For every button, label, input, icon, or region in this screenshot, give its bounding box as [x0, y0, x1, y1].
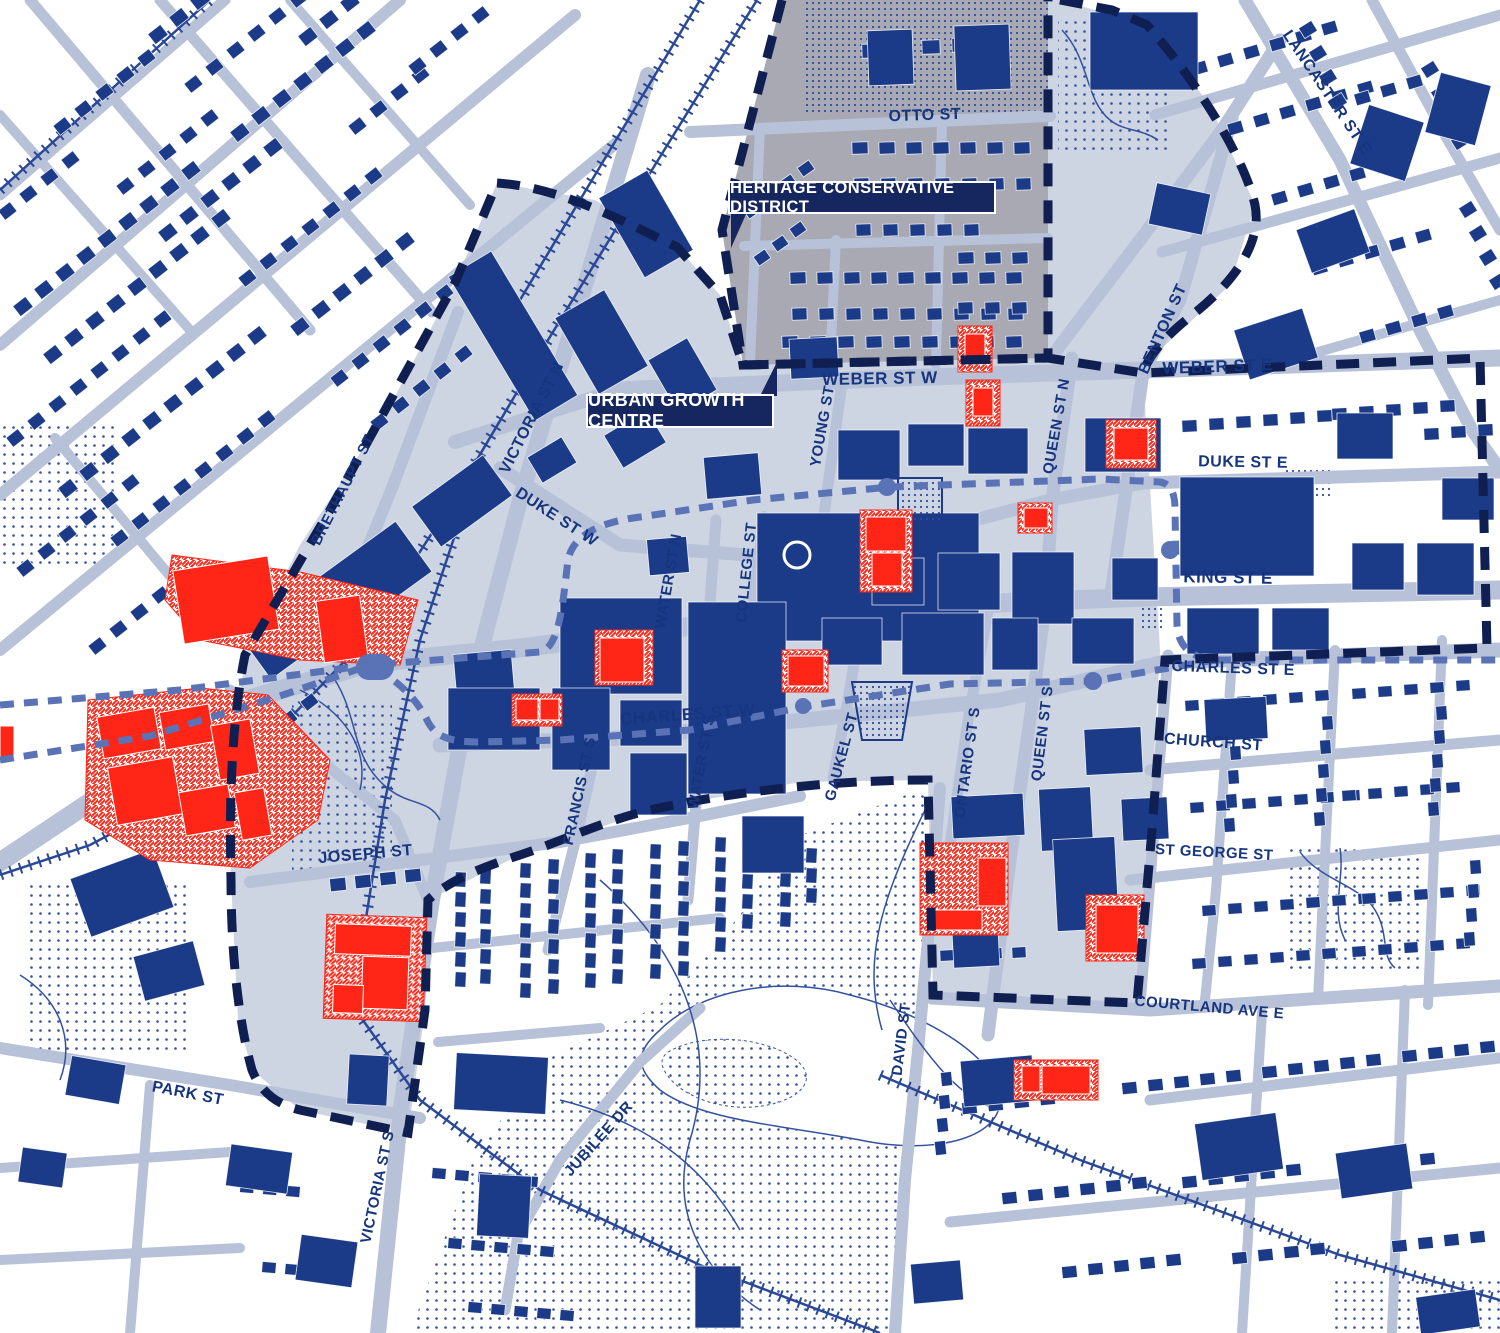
house-building [1456, 680, 1471, 692]
house-building [1413, 402, 1429, 415]
house-building [540, 1245, 555, 1257]
house-building [1388, 891, 1403, 903]
house-building [520, 863, 532, 879]
house-building [883, 224, 898, 237]
house-building [480, 909, 492, 925]
heritage-district-callout: HERITAGE CONSERVATIVE DISTRICT [728, 181, 996, 214]
house-building [922, 336, 938, 349]
house-building [1224, 818, 1236, 833]
house-building [448, 1237, 463, 1249]
house-building [934, 1140, 946, 1155]
house-building [879, 142, 895, 155]
house-building [494, 1241, 509, 1253]
urban-growth-centre-callout-label: URBAN GROWTH CENTRE [588, 390, 772, 432]
house-building [1339, 1056, 1355, 1070]
street-label: OTTO ST [888, 106, 961, 126]
urban-growth-centre-callout: URBAN GROWTH CENTRE [586, 394, 774, 428]
house-building [548, 899, 560, 915]
house-building [650, 964, 662, 980]
large-building [225, 1144, 292, 1194]
house-building [1261, 1065, 1277, 1079]
development-building [872, 553, 902, 586]
house-building [379, 871, 396, 886]
development-building [333, 984, 364, 1013]
house-building [936, 1117, 948, 1132]
house-building [715, 857, 727, 873]
house-building [1242, 798, 1257, 810]
large-building [1335, 1143, 1413, 1199]
house-building [1469, 1230, 1485, 1244]
house-building [585, 913, 597, 929]
house-building [480, 929, 492, 945]
house-building [650, 904, 662, 920]
house-building [1352, 688, 1367, 700]
large-building [938, 553, 1000, 610]
large-building [968, 428, 1028, 474]
house-building [906, 142, 922, 155]
house-building [806, 868, 818, 884]
house-building [1228, 903, 1243, 915]
house-building [1430, 682, 1445, 694]
house-building [742, 894, 754, 910]
house-building [964, 224, 979, 237]
house-building [715, 937, 727, 953]
house-building [1322, 716, 1334, 731]
house-building [987, 142, 1003, 155]
large-building [1417, 543, 1474, 595]
house-building [1061, 1265, 1077, 1279]
development-building [107, 757, 182, 826]
house-building [1113, 1259, 1129, 1273]
house-building [455, 912, 467, 928]
house-building [1263, 414, 1279, 427]
house-building [1309, 1242, 1325, 1256]
house-building [715, 917, 727, 933]
house-building [1012, 252, 1028, 265]
house-building [612, 949, 624, 965]
house-building [960, 142, 976, 155]
house-building [1320, 740, 1332, 755]
house-building [1016, 178, 1031, 191]
large-building [1084, 727, 1143, 776]
house-building [650, 864, 662, 880]
house-building [1285, 1163, 1301, 1177]
house-building [1362, 893, 1377, 905]
house-building [922, 40, 940, 55]
lrt-stop-icon [1161, 541, 1179, 559]
house-building [678, 841, 690, 857]
development-building [361, 956, 409, 1010]
house-building [898, 272, 914, 285]
house-building [790, 272, 806, 285]
house-building [985, 302, 1000, 315]
house-building [900, 308, 915, 321]
house-building [520, 903, 532, 919]
house-building [548, 879, 560, 895]
house-building [856, 224, 871, 237]
house-building [894, 336, 910, 349]
house-building [1430, 940, 1445, 952]
large-building [347, 1054, 390, 1106]
house-building [1254, 901, 1269, 913]
house-building [1479, 1040, 1495, 1054]
house-building [678, 961, 690, 977]
house-building [612, 849, 624, 865]
house-building [520, 963, 532, 979]
house-building [1283, 1245, 1299, 1259]
house-building [1181, 1175, 1197, 1189]
house-building [1165, 1253, 1181, 1267]
house-building [1296, 950, 1311, 962]
house-building [1453, 1043, 1469, 1057]
large-building [908, 424, 964, 466]
large-building [1112, 558, 1158, 600]
house-building [780, 912, 792, 928]
house-building [468, 1301, 483, 1313]
house-building [1451, 426, 1467, 439]
house-building [1053, 1185, 1069, 1199]
development-building [1114, 428, 1148, 460]
house-building [937, 224, 952, 237]
house-building [514, 1305, 529, 1317]
large-building [1194, 1113, 1283, 1181]
house-building [1440, 887, 1455, 899]
house-building [1322, 948, 1337, 960]
house-building [329, 877, 346, 892]
house-building [927, 308, 942, 321]
house-building [1414, 889, 1429, 901]
house-building [806, 848, 818, 864]
large-building [1337, 413, 1393, 459]
house-building [1314, 812, 1326, 827]
large-building [742, 816, 804, 873]
development-building [934, 910, 982, 930]
house-building [1419, 1152, 1435, 1166]
house-building [650, 944, 662, 960]
house-building [678, 861, 690, 877]
house-building [1244, 954, 1259, 966]
house-building [1006, 272, 1022, 285]
development-building [516, 699, 538, 720]
house-building [1342, 790, 1357, 802]
house-building [792, 308, 807, 321]
development-building [1096, 905, 1138, 953]
house-building [1394, 786, 1409, 798]
house-building [1404, 942, 1419, 954]
lrt-stop-icon [795, 698, 811, 714]
house-building [742, 874, 754, 890]
house-building [491, 1303, 506, 1315]
house-building [742, 914, 754, 930]
house-building [1432, 754, 1444, 769]
house-building [650, 924, 662, 940]
house-building [1466, 908, 1478, 923]
house-building [933, 142, 949, 155]
house-building [1315, 690, 1330, 702]
house-building [1446, 782, 1461, 794]
development-building [1024, 508, 1048, 528]
house-building [1306, 897, 1321, 909]
house-building [1121, 1081, 1137, 1095]
house-building [1378, 686, 1393, 698]
development-building [316, 595, 368, 663]
house-building [404, 868, 421, 883]
house-building [1404, 684, 1419, 696]
large-building [703, 453, 761, 500]
lrt-stop-icon [878, 478, 896, 496]
heritage-callout-pointer-icon [731, 212, 763, 248]
house-building [560, 1309, 575, 1321]
street-label: DUKE ST E [1198, 453, 1288, 472]
house-building [871, 272, 887, 285]
house-building [480, 969, 492, 985]
large-building [992, 618, 1038, 670]
house-building [1147, 1078, 1163, 1092]
house-building [678, 921, 690, 937]
house-building [1401, 1049, 1417, 1063]
house-building [678, 881, 690, 897]
large-building [902, 613, 984, 675]
house-building [1139, 1256, 1155, 1270]
house-building [1268, 796, 1283, 808]
house-building [1294, 794, 1309, 806]
house-building [806, 888, 818, 904]
house-building [1182, 420, 1198, 433]
house-building [480, 889, 492, 905]
house-building [780, 892, 792, 908]
house-building [1427, 1046, 1443, 1060]
house-building [517, 1243, 532, 1255]
house-building [354, 874, 371, 889]
stipple-texture [802, 0, 1048, 116]
house-building [1287, 1062, 1303, 1076]
house-building [910, 224, 925, 237]
house-building [1105, 1179, 1121, 1193]
house-building [958, 302, 973, 315]
house-building [548, 959, 560, 975]
house-building [1027, 1188, 1043, 1202]
house-building [585, 973, 597, 989]
house-building [1225, 1069, 1241, 1083]
street-label: WEBER ST E [1162, 355, 1273, 378]
large-building [1272, 608, 1329, 650]
large-building [1121, 797, 1169, 841]
house-building [1434, 730, 1446, 745]
house-building [780, 872, 792, 888]
house-building [1257, 1248, 1273, 1262]
house-building [925, 272, 941, 285]
house-building [1006, 336, 1022, 349]
house-building [1289, 692, 1304, 704]
development-building [1022, 1066, 1040, 1092]
large-building [822, 618, 882, 665]
house-building [715, 897, 727, 913]
development-building [540, 699, 559, 720]
house-building [1317, 410, 1333, 423]
house-building [1218, 956, 1233, 968]
house-building [985, 252, 1001, 265]
house-building [979, 272, 995, 285]
house-building [480, 949, 492, 965]
house-building [548, 859, 560, 875]
house-building [1014, 142, 1030, 155]
house-building [612, 969, 624, 985]
house-building [548, 979, 560, 995]
city-map: OTTO STWEBER ST WWEBER ST ELANCASTER ST … [0, 0, 1500, 1333]
house-building [612, 889, 624, 905]
house-building [1391, 1239, 1407, 1253]
heritage-district-callout-label: HERITAGE CONSERVATIVE DISTRICT [730, 179, 994, 217]
large-building [910, 1260, 963, 1304]
house-building [1316, 788, 1328, 803]
house-building [1192, 958, 1207, 970]
large-building [838, 430, 900, 480]
large-building [295, 1234, 358, 1287]
house-building [585, 873, 597, 889]
house-building [1199, 1072, 1215, 1086]
house-building [548, 939, 560, 955]
house-building [548, 919, 560, 935]
house-building [1464, 932, 1476, 947]
house-building [471, 1239, 486, 1251]
house-building [1087, 1262, 1103, 1276]
house-building [585, 893, 597, 909]
house-building [520, 923, 532, 939]
house-building [612, 929, 624, 945]
house-building [952, 272, 968, 285]
house-building [650, 844, 662, 860]
house-building [1468, 884, 1480, 899]
large-building [476, 1174, 531, 1239]
development-building [334, 924, 411, 957]
development-building [1042, 1066, 1090, 1094]
large-building [1012, 552, 1074, 624]
house-building [1236, 416, 1252, 429]
house-building [585, 853, 597, 869]
house-building [940, 950, 955, 962]
house-building [1440, 400, 1456, 413]
house-building [1202, 905, 1217, 917]
house-building [1079, 1182, 1095, 1196]
house-building [844, 272, 860, 285]
house-building [262, 1261, 277, 1273]
lrt-stop-icon [1084, 672, 1102, 690]
large-building [954, 24, 1011, 91]
development-building [978, 858, 1006, 906]
house-building [1443, 1233, 1459, 1247]
large-building [1352, 543, 1404, 590]
house-building [873, 308, 888, 321]
development-building [600, 638, 644, 682]
house-building [678, 941, 690, 957]
street-label: KING ST E [1183, 567, 1273, 588]
large-building [695, 1266, 741, 1328]
large-building [867, 29, 914, 86]
house-building [1424, 428, 1440, 441]
house-building [678, 901, 690, 917]
house-building [1428, 802, 1440, 817]
house-building [1270, 952, 1285, 964]
house-building [715, 877, 727, 893]
house-building [715, 837, 727, 853]
house-building [1209, 418, 1225, 431]
development-building [866, 517, 906, 551]
house-building [819, 308, 834, 321]
house-building [455, 932, 467, 948]
large-building [1072, 618, 1134, 664]
house-building [585, 953, 597, 969]
house-building [1012, 947, 1027, 959]
house-building [520, 883, 532, 899]
transit-hub-icon [356, 654, 394, 680]
house-building [817, 272, 833, 285]
house-building [1280, 899, 1295, 911]
house-building [585, 933, 597, 949]
house-building [1436, 706, 1448, 721]
house-building [866, 336, 882, 349]
large-building [454, 1053, 549, 1115]
house-building [455, 952, 467, 968]
house-building [1290, 412, 1306, 425]
house-building [838, 336, 854, 349]
development-building [973, 388, 993, 416]
house-building [1332, 895, 1347, 907]
house-building [1318, 764, 1330, 779]
house-building [1352, 946, 1367, 958]
house-building [1430, 778, 1442, 793]
house-building [537, 1307, 552, 1319]
house-building [1001, 1191, 1017, 1205]
house-building [432, 1167, 447, 1179]
house-building [520, 983, 532, 999]
house-building [612, 869, 624, 885]
house-building [1190, 802, 1205, 814]
development-building [788, 656, 824, 686]
house-building [1173, 1075, 1189, 1089]
house-building [1417, 1236, 1433, 1250]
house-building [650, 884, 662, 900]
large-building [1187, 608, 1259, 654]
large-building [1416, 1289, 1481, 1333]
house-building [846, 308, 861, 321]
house-building [1470, 860, 1482, 875]
house-building [1365, 1053, 1381, 1067]
house-building [1131, 1176, 1147, 1190]
large-building [18, 1147, 67, 1188]
house-building [1378, 944, 1393, 956]
house-building [520, 943, 532, 959]
house-building [852, 142, 868, 155]
house-building [958, 252, 974, 265]
house-building [1228, 770, 1240, 785]
house-building [1478, 424, 1494, 437]
house-building [1185, 700, 1200, 712]
house-building [455, 892, 467, 908]
large-building [1180, 477, 1314, 576]
street-label: WEBER ST W [822, 368, 938, 389]
house-building [455, 972, 467, 988]
house-building [1012, 302, 1027, 315]
house-building [1313, 1059, 1329, 1073]
house-building [1368, 788, 1383, 800]
house-building [1231, 1251, 1247, 1265]
house-building [938, 1094, 950, 1109]
house-building [940, 1071, 952, 1086]
house-building [1226, 794, 1238, 809]
house-building [612, 909, 624, 925]
house-building [455, 1169, 470, 1181]
